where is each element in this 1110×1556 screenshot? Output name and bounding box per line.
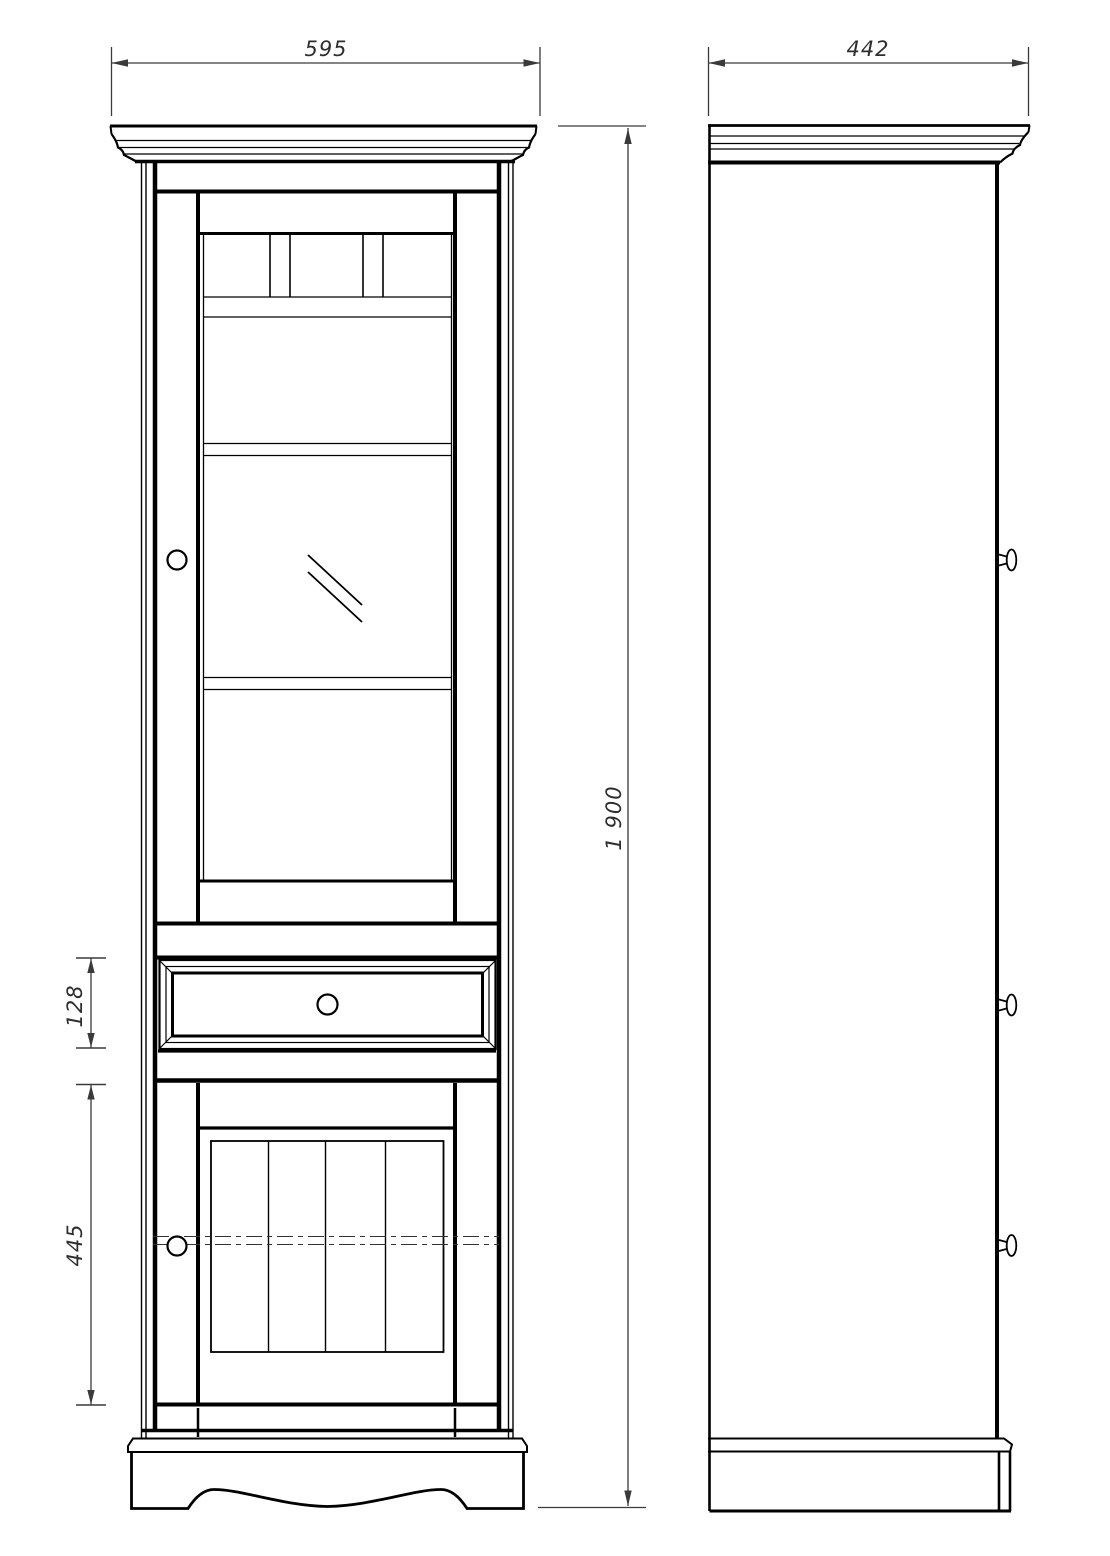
lower-door-knob xyxy=(168,1237,187,1256)
side-knob-middle xyxy=(999,995,1016,1016)
front-plinth xyxy=(128,1439,527,1509)
dim-lower-door-height-label: 445 xyxy=(63,1223,87,1266)
cabinet-drawing-svg: 595 442 1 900 128 xyxy=(0,0,1110,1556)
side-knob-upper xyxy=(999,550,1016,571)
shelf-upper xyxy=(204,444,452,456)
side-cornice xyxy=(708,126,1030,163)
drawer-knob xyxy=(318,995,338,1015)
upper-glass-door xyxy=(168,193,456,922)
dim-drawer-height-label: 128 xyxy=(63,984,87,1027)
dim-side-depth: 442 xyxy=(709,37,1029,116)
dimensions: 595 442 1 900 128 xyxy=(63,37,1029,1508)
door-slats xyxy=(269,1141,386,1352)
side-plinth xyxy=(708,1438,1012,1511)
shelf-lower xyxy=(204,678,452,690)
side-view xyxy=(708,126,1030,1512)
front-cornice xyxy=(110,126,537,162)
upper-door-knob xyxy=(168,551,187,570)
dim-side-depth-label: 442 xyxy=(846,37,889,61)
dim-drawer-height: 128 xyxy=(63,958,106,1048)
technical-drawing: 595 442 1 900 128 xyxy=(0,0,1110,1556)
plinth-apron xyxy=(132,1452,524,1509)
dim-lower-door-height: 445 xyxy=(63,1085,106,1406)
dim-overall-height-label: 1 900 xyxy=(602,785,626,850)
drawer xyxy=(158,960,496,1051)
side-body xyxy=(710,126,998,1439)
lower-door xyxy=(153,1083,499,1406)
front-view xyxy=(110,126,537,1509)
dim-front-width: 595 xyxy=(112,37,541,116)
plinth-molding xyxy=(128,1439,527,1453)
side-knob-lower xyxy=(999,1235,1016,1256)
glass-pane-hatch xyxy=(308,555,362,622)
dim-front-width-label: 595 xyxy=(304,37,347,61)
upper-panel-row xyxy=(204,235,452,317)
dim-overall-height: 1 900 xyxy=(538,126,646,1508)
